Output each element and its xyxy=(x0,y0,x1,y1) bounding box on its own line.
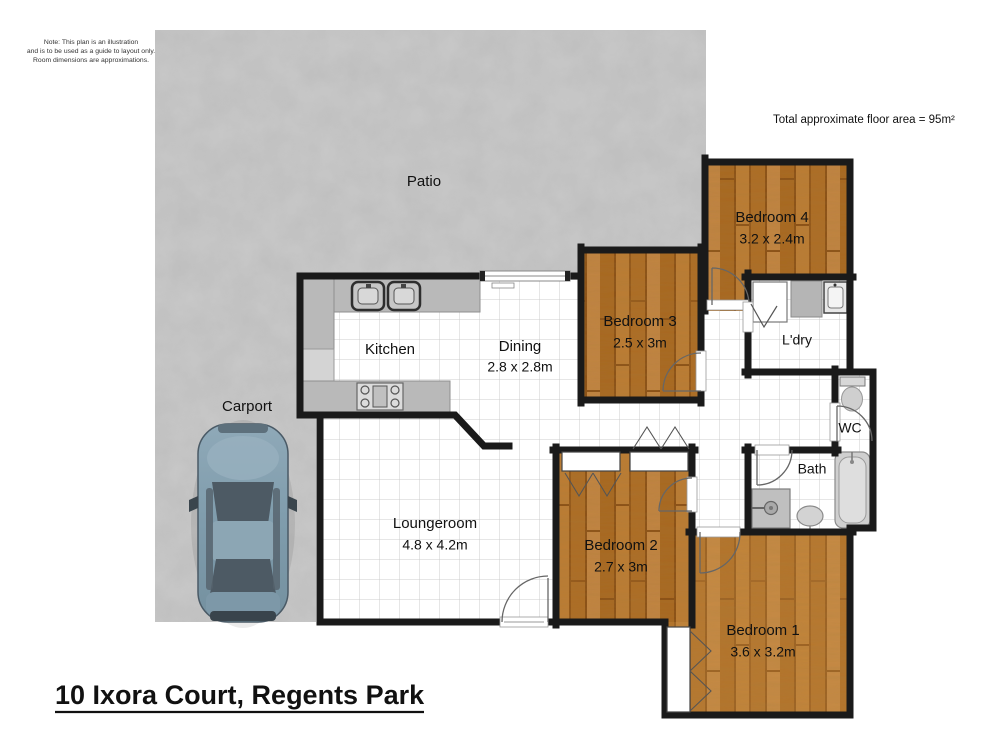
bedroom4-label: Bedroom 4 xyxy=(735,209,808,226)
note-line-2: and is to be used as a guide to layout o… xyxy=(27,48,155,55)
car-front-bumper xyxy=(218,424,268,433)
loungeroom-dims: 4.8 x 4.2m xyxy=(402,537,467,553)
laundry-label: L'dry xyxy=(782,332,812,348)
loungeroom-label: Loungeroom xyxy=(393,515,477,532)
plan-title: 10 Ixora Court, Regents Park xyxy=(55,680,425,710)
patio-area xyxy=(155,30,706,276)
car-rear-bumper xyxy=(210,611,276,621)
floor-plan: Patio Carport Kitchen Dining 2.8 x 2.8m … xyxy=(0,0,1000,750)
bedroom1-label: Bedroom 1 xyxy=(726,622,799,639)
car-rear-window xyxy=(210,559,276,594)
bedroom1-dims: 3.6 x 3.2m xyxy=(730,644,795,660)
bath-label: Bath xyxy=(798,461,827,477)
patio-texture xyxy=(155,30,706,276)
car-hood xyxy=(207,436,279,480)
dryer-icon xyxy=(791,281,822,317)
wc-label: WC xyxy=(838,420,861,436)
note-line-3: Room dimensions are approximations. xyxy=(33,57,149,64)
cooktop-icon xyxy=(357,383,403,410)
bedroom3-label: Bedroom 3 xyxy=(603,313,676,330)
bedroom4-dims: 3.2 x 2.4m xyxy=(739,231,804,247)
car-roof xyxy=(212,521,274,561)
car-top-view-icon xyxy=(189,420,297,628)
laundry-tub-icon xyxy=(824,282,847,313)
floor-area-note: Total approximate floor area = 95m² xyxy=(773,114,955,126)
dining-dims: 2.8 x 2.8m xyxy=(487,359,552,375)
dishwasher xyxy=(303,349,334,381)
bathtub-icon xyxy=(835,452,870,528)
car-windshield xyxy=(212,482,274,524)
bedroom2-label: Bedroom 2 xyxy=(584,537,657,554)
dining-label: Dining xyxy=(499,338,542,355)
patio-label: Patio xyxy=(407,173,441,190)
bedroom3-dims: 2.5 x 3m xyxy=(613,335,667,351)
carport-label: Carport xyxy=(222,398,273,415)
shower-icon xyxy=(752,489,790,528)
bedroom2-dims: 2.7 x 3m xyxy=(594,559,648,575)
note-line-1: Note: This plan is an illustration xyxy=(44,39,139,46)
plan-title-group: 10 Ixora Court, Regents Park xyxy=(55,680,425,712)
kitchen-label: Kitchen xyxy=(365,341,415,358)
